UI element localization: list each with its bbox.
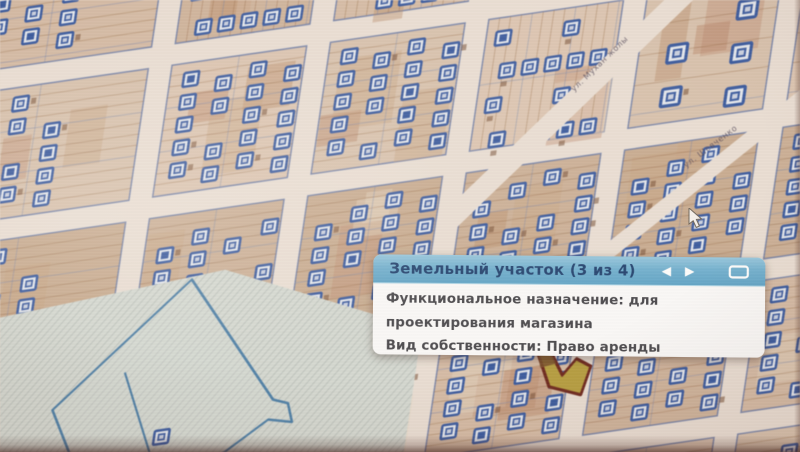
- popup-body: Функциональное назначение: для проектиро…: [373, 283, 766, 357]
- prev-parcel-button[interactable]: ◀: [662, 265, 671, 277]
- popup-line-3: Вид собственности: Право аренды: [386, 334, 753, 357]
- screen-photo: ул. Мухан жолыул. Шевченко Земельный уча…: [0, 0, 800, 452]
- map-block: [153, 46, 307, 197]
- map-grid: [0, 0, 800, 452]
- restore-window-icon: [728, 264, 749, 279]
- expand-window-button[interactable]: [728, 264, 749, 279]
- popup-line-1: Функциональное назначение: для: [386, 287, 753, 314]
- next-parcel-button[interactable]: ▶: [685, 265, 694, 277]
- parcel-info-popup: Земельный участок (3 из 4) ◀ ▶ Функциона…: [373, 254, 766, 357]
- mouse-cursor: [688, 208, 704, 230]
- map-svg[interactable]: ул. Мухан жолыул. Шевченко: [0, 0, 800, 452]
- popup-header[interactable]: Земельный участок (3 из 4) ◀ ▶: [373, 254, 765, 286]
- popup-title: Земельный участок (3 из 4): [389, 259, 662, 279]
- map-block: [311, 22, 470, 174]
- popup-line-2: проектирования магазина: [386, 311, 753, 338]
